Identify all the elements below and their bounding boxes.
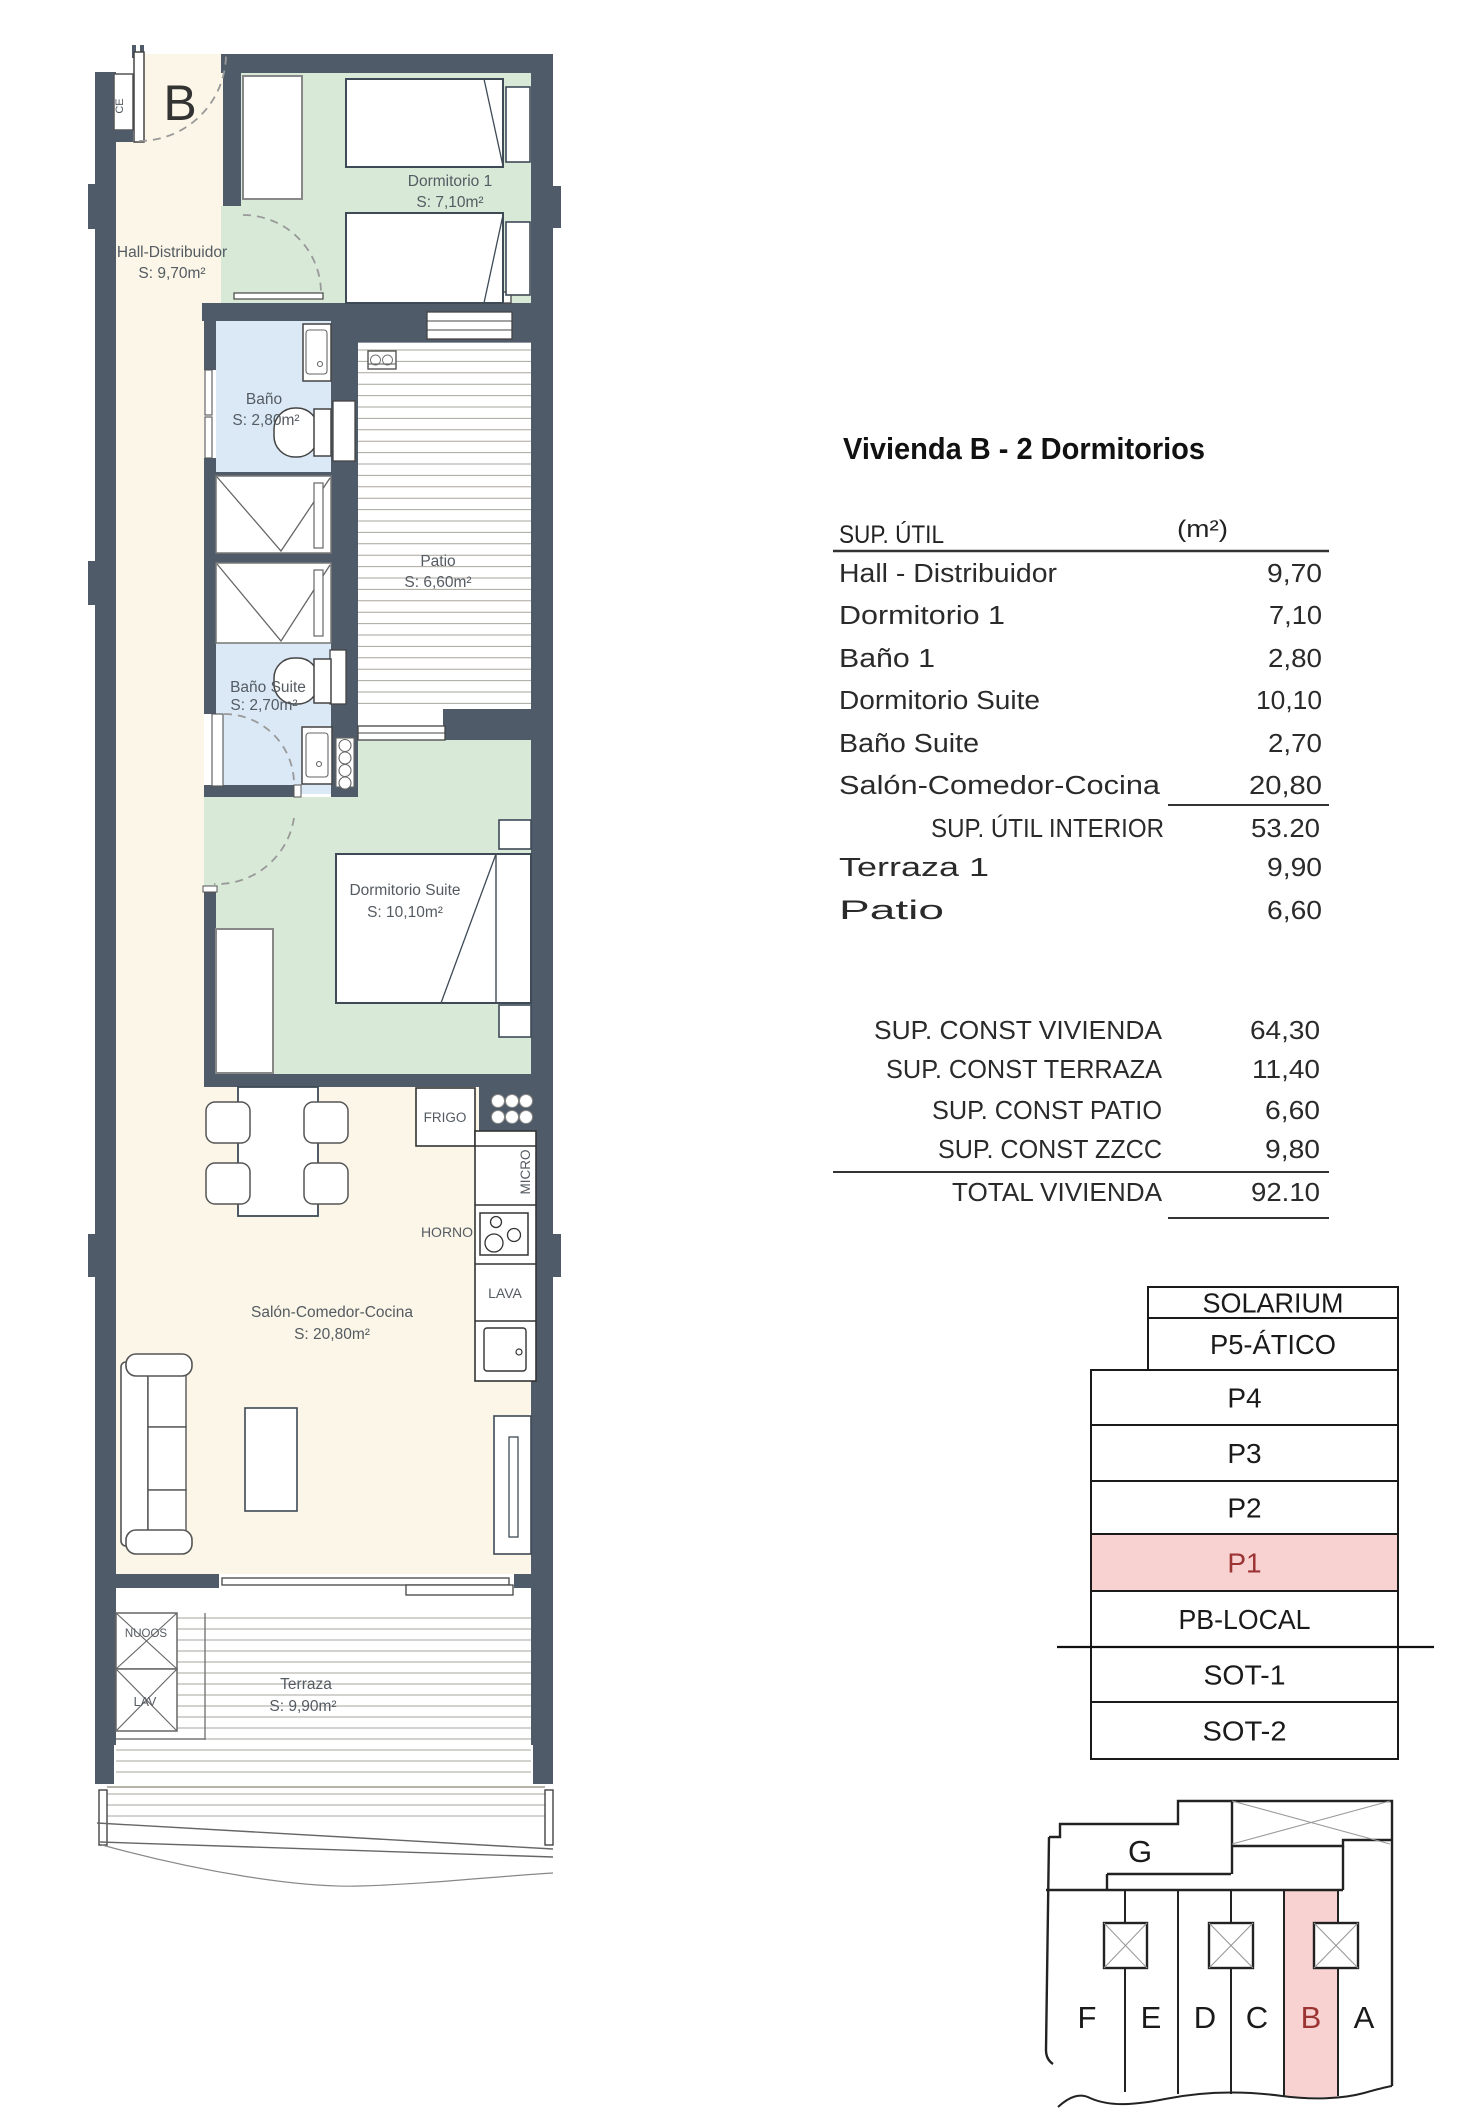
svg-text:PB-LOCAL: PB-LOCAL (1179, 1604, 1311, 1635)
svg-text:LAV: LAV (134, 1695, 157, 1709)
svg-text:B: B (163, 75, 196, 131)
svg-text:53.20: 53.20 (1251, 815, 1320, 843)
svg-text:SUP. ÚTIL INTERIOR: SUP. ÚTIL INTERIOR (931, 814, 1164, 843)
svg-text:9,70: 9,70 (1267, 560, 1322, 588)
svg-text:92.10: 92.10 (1251, 1179, 1320, 1207)
svg-text:TOTAL VIVIENDA: TOTAL VIVIENDA (952, 1179, 1162, 1207)
svg-text:Patio: Patio (420, 553, 455, 570)
svg-text:6,60: 6,60 (1265, 1097, 1320, 1125)
svg-text:P1: P1 (1227, 1548, 1261, 1579)
svg-text:Dormitorio 1: Dormitorio 1 (408, 173, 492, 190)
svg-text:Terraza: Terraza (280, 1676, 332, 1693)
svg-text:Baño Suite: Baño Suite (230, 679, 306, 696)
svg-text:SOT-2: SOT-2 (1203, 1716, 1287, 1747)
svg-text:64,30: 64,30 (1250, 1017, 1320, 1045)
svg-text:NUOOS: NUOOS (125, 1628, 168, 1640)
svg-text:C: C (1246, 2000, 1268, 2035)
svg-text:P4: P4 (1227, 1383, 1261, 1414)
svg-text:CE: CE (114, 98, 126, 113)
svg-text:Patio: Patio (839, 895, 944, 925)
svg-text:S: 9,90m²: S: 9,90m² (269, 1698, 336, 1715)
svg-text:9,80: 9,80 (1265, 1136, 1320, 1164)
svg-text:Dormitorio 1: Dormitorio 1 (839, 602, 1005, 630)
svg-text:Hall-Distribuidor: Hall-Distribuidor (117, 244, 227, 261)
svg-text:P2: P2 (1227, 1493, 1261, 1524)
svg-text:Baño Suite: Baño Suite (839, 730, 979, 758)
svg-text:7,10: 7,10 (1269, 602, 1322, 630)
svg-text:SUP. CONST VIVIENDA: SUP. CONST VIVIENDA (874, 1017, 1162, 1045)
svg-text:S: 6,60m²: S: 6,60m² (404, 574, 471, 591)
svg-text:20,80: 20,80 (1249, 772, 1322, 800)
svg-text:Hall - Distribuidor: Hall - Distribuidor (839, 560, 1058, 588)
svg-text:6,60: 6,60 (1267, 897, 1322, 925)
svg-text:2,70: 2,70 (1268, 730, 1322, 758)
svg-text:SUP. CONST TERRAZA: SUP. CONST TERRAZA (886, 1056, 1162, 1084)
svg-text:11,40: 11,40 (1252, 1056, 1320, 1084)
svg-text:A: A (1354, 2000, 1375, 2035)
svg-text:S: 10,10m²: S: 10,10m² (367, 904, 443, 921)
svg-text:2,80: 2,80 (1268, 645, 1322, 673)
svg-text:SUP. CONST ZZCC: SUP. CONST ZZCC (938, 1136, 1162, 1164)
svg-text:P3: P3 (1227, 1438, 1261, 1469)
svg-text:Dormitorio Suite: Dormitorio Suite (349, 882, 460, 899)
svg-text:SOT-1: SOT-1 (1204, 1660, 1286, 1691)
svg-text:SUP. CONST PATIO: SUP. CONST PATIO (932, 1097, 1162, 1125)
svg-text:MICRO: MICRO (518, 1150, 533, 1195)
svg-text:S: 9,70m²: S: 9,70m² (138, 265, 205, 282)
svg-text:F: F (1078, 2000, 1097, 2035)
svg-text:S: 2,80m²: S: 2,80m² (232, 412, 299, 429)
svg-text:Dormitorio Suite: Dormitorio Suite (839, 687, 1040, 715)
svg-text:9,90: 9,90 (1267, 854, 1322, 882)
svg-text:P5-ÁTICO: P5-ÁTICO (1210, 1329, 1336, 1360)
svg-text:D: D (1194, 2000, 1216, 2035)
svg-text:10,10: 10,10 (1256, 687, 1322, 715)
svg-text:FRIGO: FRIGO (424, 1110, 467, 1125)
svg-text:Terraza 1: Terraza 1 (839, 854, 989, 882)
svg-text:SUP. ÚTIL: SUP. ÚTIL (839, 520, 944, 549)
svg-text:HORNO: HORNO (421, 1224, 473, 1240)
svg-text:Vivienda B - 2 Dormitorios: Vivienda B - 2 Dormitorios (843, 431, 1205, 466)
svg-text:S: 2,70m²: S: 2,70m² (230, 697, 297, 714)
svg-text:E: E (1141, 2000, 1162, 2035)
svg-text:SOLARIUM: SOLARIUM (1203, 1288, 1344, 1319)
svg-text:Salón-Comedor-Cocina: Salón-Comedor-Cocina (839, 772, 1161, 800)
svg-text:Baño: Baño (246, 391, 282, 408)
svg-text:S: 7,10m²: S: 7,10m² (416, 194, 483, 211)
svg-text:Salón-Comedor-Cocina: Salón-Comedor-Cocina (251, 1304, 413, 1321)
svg-text:S: 20,80m²: S: 20,80m² (294, 1326, 370, 1343)
svg-text:(m²): (m²) (1177, 516, 1228, 543)
svg-text:G: G (1128, 1834, 1152, 1869)
svg-text:LAVA: LAVA (488, 1285, 522, 1301)
svg-text:Baño 1: Baño 1 (839, 645, 935, 673)
svg-text:B: B (1301, 2000, 1322, 2035)
